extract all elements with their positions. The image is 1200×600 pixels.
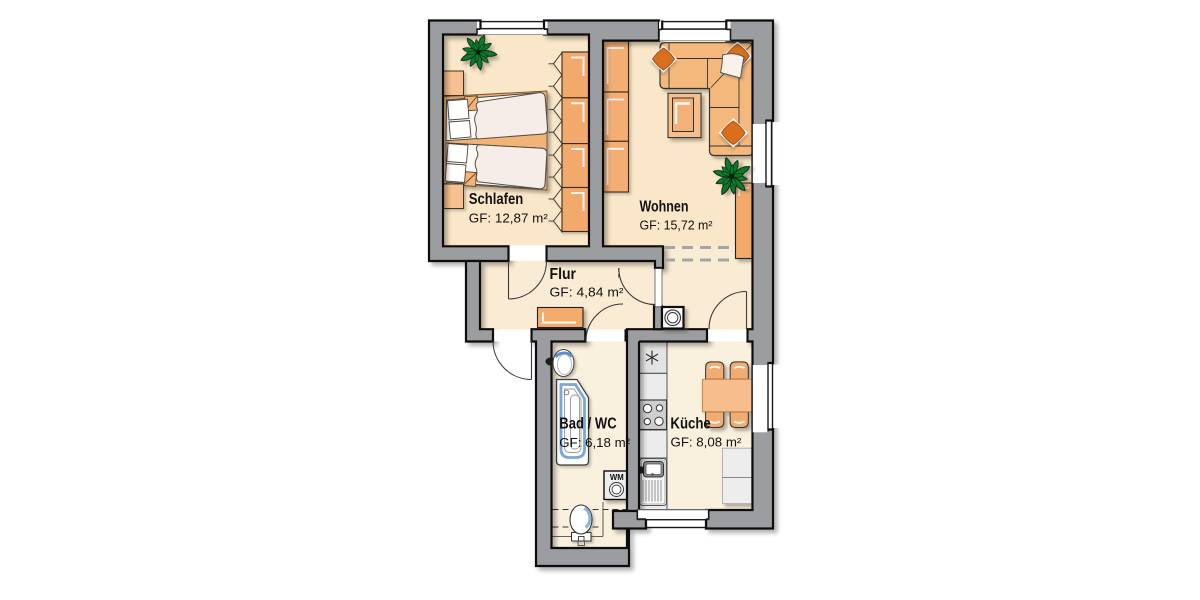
svg-text:Flur: Flur bbox=[550, 266, 577, 283]
svg-text:WM: WM bbox=[610, 473, 624, 482]
svg-text:GF: 8,08 m²: GF: 8,08 m² bbox=[671, 435, 742, 450]
svg-text:GF: 12,87 m²: GF: 12,87 m² bbox=[469, 210, 549, 225]
svg-text:GF: 6,18 m²: GF: 6,18 m² bbox=[559, 435, 630, 450]
svg-text:Schlafen: Schlafen bbox=[469, 191, 524, 208]
svg-text:GF: 4,84 m²: GF: 4,84 m² bbox=[550, 285, 625, 300]
svg-text:GF: 15,72 m²: GF: 15,72 m² bbox=[640, 218, 714, 233]
svg-text:Bad / WC: Bad / WC bbox=[559, 415, 616, 432]
svg-text:Küche: Küche bbox=[670, 416, 711, 433]
svg-text:Wohnen: Wohnen bbox=[640, 199, 689, 216]
